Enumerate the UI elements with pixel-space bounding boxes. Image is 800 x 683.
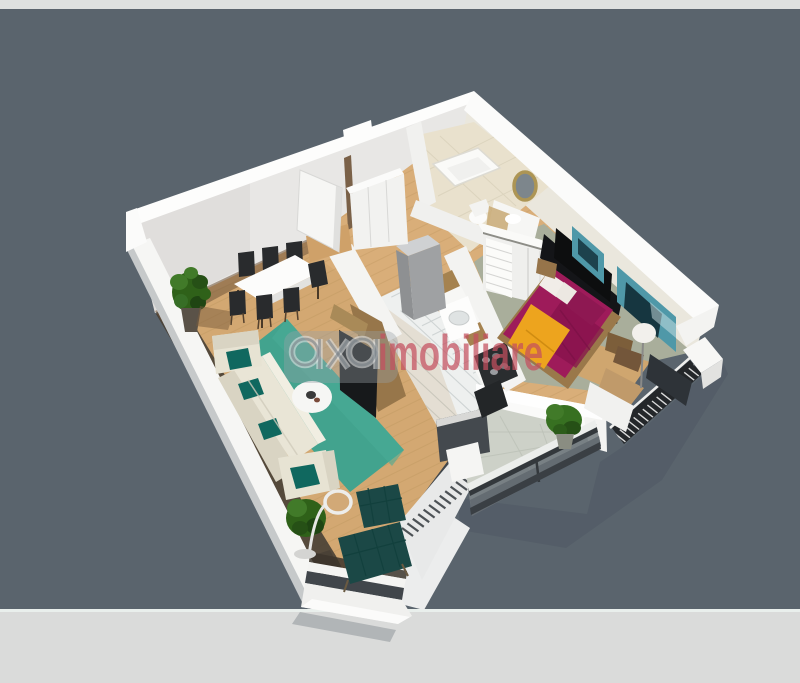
svg-text:imobiliare: imobiliare [378,325,543,381]
